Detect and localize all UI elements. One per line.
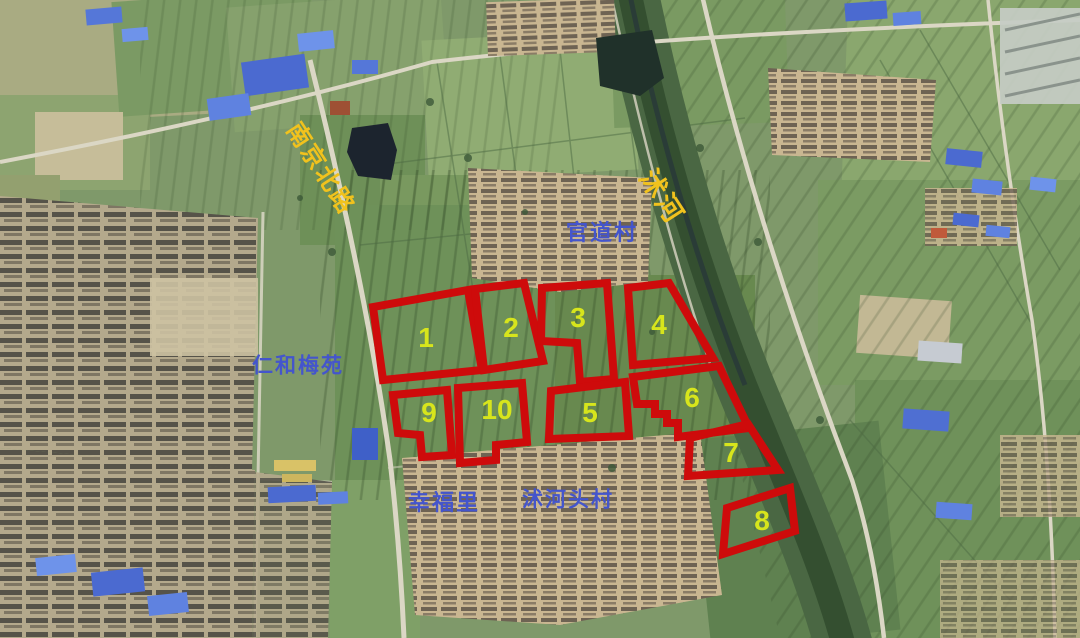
place-label: 幸福里 <box>408 492 480 514</box>
place-label: 仁和梅苑 <box>252 356 344 377</box>
satellite-map: 12345678910 南京北路沭河官道村仁和梅苑幸福里沭河头村 <box>0 0 1080 638</box>
river-label: 沭河 <box>634 165 688 228</box>
place-label: 官道村 <box>566 222 638 244</box>
road-label: 南京北路 <box>282 119 359 219</box>
place-label: 沭河头村 <box>522 490 614 511</box>
place-labels: 南京北路沭河官道村仁和梅苑幸福里沭河头村 <box>0 0 1080 638</box>
